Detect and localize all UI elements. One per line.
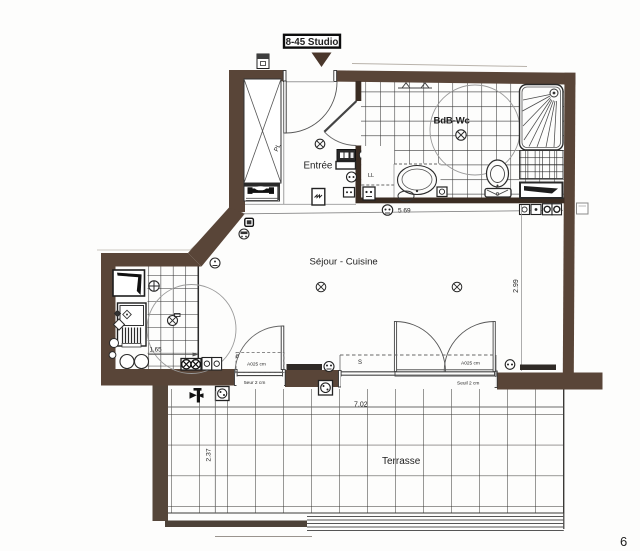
svg-text:6: 6: [620, 534, 627, 549]
svg-text:1.65: 1.65: [150, 347, 163, 354]
svg-text:A025 cm: A025 cm: [461, 361, 480, 367]
svg-text:5 69: 5 69: [398, 208, 411, 215]
svg-text:S: S: [358, 360, 362, 366]
svg-text:7.02: 7.02: [354, 402, 368, 409]
svg-text:5eur 2 cm: 5eur 2 cm: [244, 380, 265, 386]
svg-text:2.99: 2.99: [513, 279, 520, 293]
svg-text:BdB-Wc: BdB-Wc: [434, 116, 471, 127]
svg-text:Seuil 2 cm: Seuil 2 cm: [457, 381, 479, 387]
svg-text:8: 8: [236, 354, 239, 360]
svg-text:8-45 Studio: 8-45 Studio: [286, 37, 339, 48]
svg-text:Entrée: Entrée: [304, 161, 333, 172]
svg-text:LL: LL: [368, 173, 374, 179]
svg-text:Terrasse: Terrasse: [382, 456, 421, 467]
svg-text:Séjour - Cuisine: Séjour - Cuisine: [310, 257, 378, 268]
svg-text:A025 cm: A025 cm: [247, 362, 266, 368]
svg-text:2.37: 2.37: [206, 448, 213, 461]
